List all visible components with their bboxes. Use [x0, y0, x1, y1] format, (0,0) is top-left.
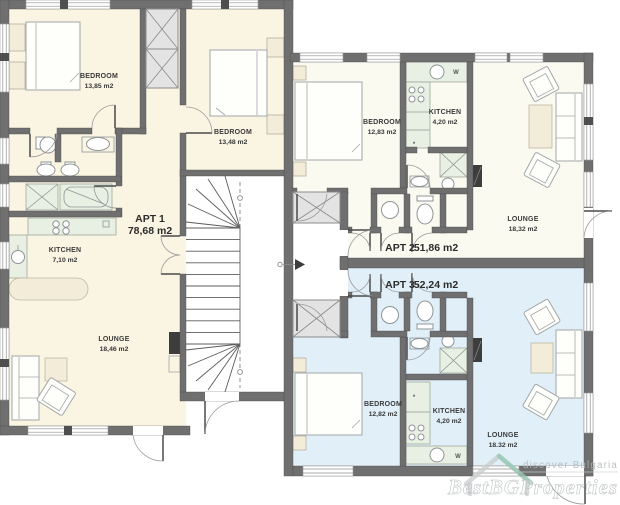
apt1-kitchen-peninsula	[9, 278, 88, 300]
apt1-bedroom1-label: BEDROOM	[80, 73, 118, 80]
apt3-coffee-table	[531, 343, 553, 373]
apt1-bed2	[210, 50, 267, 116]
apt1-kitchen-sink	[12, 251, 25, 264]
apt1-bedroom2-area: 13,48 m2	[219, 139, 248, 146]
stair-landing	[293, 223, 340, 300]
apt3-name: APT 3	[385, 279, 415, 291]
apt3-bed	[295, 373, 362, 435]
apt1-coffee-table	[45, 358, 67, 381]
apt2-name: APT 2	[385, 242, 415, 254]
apt2-wc-basin	[382, 202, 399, 219]
apt2-lounge-area: 18,32 m2	[509, 226, 538, 233]
apt2-toilet	[417, 204, 433, 224]
apt1-kitchen-label: KITCHEN	[49, 247, 82, 254]
apt3-sofa	[556, 330, 582, 398]
floor-plan-page: BEDROOM 13,85 m2 BEDROOM 13,48 m2 KITCHE…	[0, 0, 620, 505]
apt2-bedroom-label: BEDROOM	[363, 119, 401, 126]
apt2-bedroom-area: 12,83 m2	[368, 129, 397, 136]
apt3-kitchen-sink	[430, 448, 444, 462]
apt1-kitchen-area: 7,10 m2	[53, 257, 78, 264]
watermark-brand: BestBGProperties	[447, 475, 618, 499]
apt1-lounge-area: 18,46 m2	[100, 346, 129, 353]
apt3-kitchen-label: KITCHEN	[433, 408, 466, 415]
apt2-kitchen-label: KITCHEN	[429, 109, 462, 116]
apt3-bedroom-area: 12,82 m2	[369, 411, 398, 418]
apt2-coffee-table	[529, 105, 552, 148]
floor-plan-drawing: BEDROOM 13,85 m2 BEDROOM 13,48 m2 KITCHE…	[0, 0, 620, 505]
apt3-area: 52,24 m2	[414, 279, 459, 291]
apt3-kitchen-area: 4,20 m2	[437, 418, 462, 425]
apt1-fireplace	[169, 332, 180, 354]
apt3-washer-symbol: W	[455, 454, 461, 460]
apt1-name: APT 1	[135, 213, 165, 225]
apt2-area: 51,86 m2	[414, 242, 459, 254]
apt1-sofa	[12, 356, 39, 420]
apt1-lounge-label: LOUNGE	[98, 336, 129, 343]
apt2-lounge-label: LOUNGE	[507, 216, 538, 223]
apt1-bedroom2-label: BEDROOM	[214, 129, 252, 136]
apt2-bed	[295, 82, 362, 160]
apt3-toilet	[417, 301, 433, 321]
apt2-washer-symbol: W	[453, 70, 459, 76]
apt3-wc-basin	[382, 307, 399, 324]
apt1-area: 78,68 m2	[128, 225, 173, 237]
apt1-bedroom1-area: 13,85 m2	[85, 83, 114, 90]
staircase	[186, 176, 242, 392]
watermark-tagline: discover Bulgaria	[523, 460, 618, 471]
apt2-kitchen-area: 4,20 m2	[433, 119, 458, 126]
apt2-kitchen-sink	[430, 65, 444, 79]
apt3-lounge-area: 18.32 m2	[489, 442, 518, 449]
apt2-sofa	[556, 93, 582, 161]
apt3-bedroom-label: BEDROOM	[364, 401, 402, 408]
apt3-lounge-label: LOUNGE	[487, 432, 518, 439]
